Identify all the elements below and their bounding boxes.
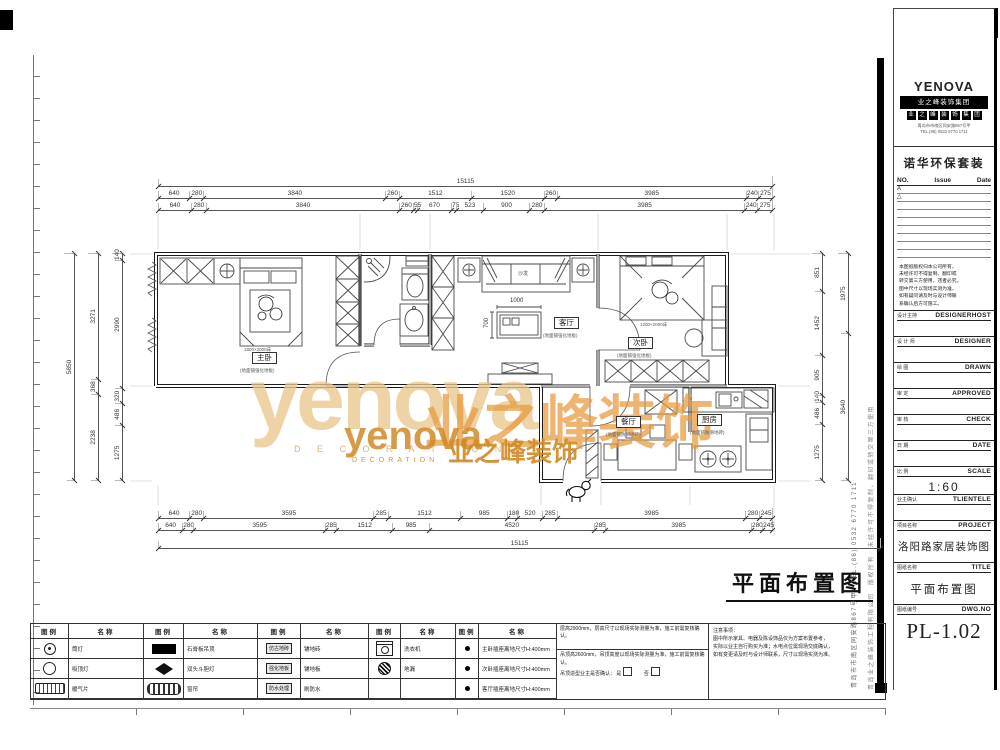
dim-label: 523	[456, 203, 483, 211]
dim-label: 3985	[557, 191, 746, 199]
dim-label: 640	[158, 523, 182, 531]
field-title: 图纸名称TITLE 平面布置图	[894, 562, 994, 604]
dim-label: 285	[542, 511, 556, 519]
curtain-icon	[147, 683, 181, 695]
legend-table: 图例 名称 图例 名称 图例 名称 图例 名称 图例 名称 筒灯 石膏板吊顶 仿…	[30, 623, 886, 700]
project-name: 洛阳路家居装饰图	[897, 531, 991, 554]
legend-icon-cell	[144, 679, 184, 699]
legend-name: 筒灯	[69, 639, 144, 659]
issue-row: △	[897, 194, 991, 202]
legend-icon-cell	[456, 679, 479, 699]
field-approved: 审 定APPROVED	[894, 388, 994, 414]
dim-label: 240	[746, 191, 758, 199]
field-label-cn: 图纸名称	[897, 564, 917, 571]
legend-header-name: 名称	[69, 624, 144, 639]
field-label-cn: 绘 图	[897, 364, 908, 371]
field-label-en: PROJECT	[958, 522, 991, 529]
issue-row	[897, 202, 991, 210]
legend-icon-cell	[144, 639, 184, 659]
copyright-disclaimer: 本图纸版权归本公司所有，未经许可不得复制、翻印或转交第三方使用，违者必究。图中尺…	[894, 258, 994, 311]
legend-notes: 层高2900mm，层高尺寸以现场实际测量为准，施工前需复核确认。 吊顶高2600…	[557, 624, 709, 699]
dim-label: 2990	[115, 261, 123, 389]
legend-icon-cell	[31, 679, 69, 699]
field-drawn: 绘 图DRAWN	[894, 362, 994, 388]
dim-label: 486	[115, 404, 123, 426]
dim-label: 1520	[471, 191, 544, 199]
legend-header-name: 名称	[401, 624, 456, 639]
dim-label: 15115	[158, 541, 880, 549]
legend-icon-cell: 仿古地砖	[258, 639, 301, 659]
brand-block-char: 集	[962, 111, 971, 120]
disclaimer-line: 图中尺寸以现场实测为准，	[899, 286, 989, 293]
ceiling-lamp-icon	[43, 662, 56, 675]
field-clientele: 业主确认TLIENTELE	[894, 494, 994, 520]
brand-block-char: 之	[918, 111, 927, 120]
legend-name: 双头斗胆灯	[184, 659, 258, 679]
legend-name	[401, 679, 456, 699]
legend-icon-cell	[369, 679, 401, 699]
waterproofing-icon: 防水处理	[266, 683, 292, 694]
dim-chain-bottom-1: 640280359528515129851805202853985280245	[158, 508, 773, 519]
field-label-cn: 设 计 师	[897, 338, 915, 345]
field-value	[897, 425, 991, 428]
legend-header-symbol: 图例	[31, 624, 69, 639]
dim-chain-bottom-overall: 15115	[158, 538, 881, 549]
legend-name: 主卧插座离地尺寸H:400mm	[479, 639, 557, 659]
legend-icon-cell	[144, 659, 184, 679]
dim-label: 4520	[429, 523, 594, 531]
room-label-master: 主卧	[252, 352, 277, 364]
legend-icon-cell	[31, 639, 69, 659]
field-label-cn: 设计主持	[897, 312, 917, 319]
legend-header-symbol: 图例	[144, 624, 184, 639]
field-value	[897, 373, 991, 376]
dim-label: 280	[529, 203, 544, 211]
company-address: 青岛市市南区同安路867号甲 TEL.(86) 0532 6770 1711	[898, 123, 990, 136]
dim-label: 280	[189, 511, 203, 519]
bed-caption-second: 1200×2000床	[640, 322, 667, 328]
field-label-cn: 图纸编号	[897, 606, 917, 613]
dim-label: 900	[483, 203, 529, 211]
dim-label: 368	[91, 380, 99, 395]
dim-label: 5850	[67, 254, 75, 481]
dim-label: 280	[191, 203, 206, 211]
sheet-title: 平面布置图	[897, 573, 991, 597]
address-line1: 青岛市市南区同安路867号甲	[917, 123, 970, 128]
dim-label: 640	[158, 203, 191, 211]
dim-chain-right-mid: 36401975	[838, 253, 849, 481]
issue-row	[897, 226, 991, 234]
issue-header: NO. Issue Date	[897, 177, 991, 186]
dim-label: 520	[517, 511, 542, 519]
field-scale: 比 例SCALE 1:60	[894, 466, 994, 494]
legend-name: 吸顶灯	[69, 659, 144, 679]
dim-label: 285	[325, 523, 336, 531]
field-project: 项目名称PROJECT 洛阳路家居装饰图	[894, 520, 994, 562]
dim-label: 3840	[206, 203, 399, 211]
field-label-cn: 日 期	[897, 442, 908, 449]
legend-name: 刷防水	[301, 679, 369, 699]
legend-icon-cell	[369, 639, 401, 659]
dim-label: 3840	[203, 191, 385, 199]
laminate-floor-icon: 强化地板	[266, 663, 292, 674]
company-logo: YENOVA 业之峰装饰集团 业之峰装饰集团 青岛市市南区同安路867号甲 TE…	[894, 9, 994, 140]
field-label-en: DWG.NO	[962, 606, 991, 613]
legend-header-name: 名称	[301, 624, 369, 639]
field-label-en: TITLE	[971, 564, 991, 571]
dog-figure	[566, 479, 591, 502]
legend-header-name: 名称	[479, 624, 557, 639]
dim-label: 240	[744, 203, 757, 211]
field-label-en: DRAWN	[965, 364, 991, 371]
field-value	[897, 451, 991, 454]
brand-bar: 业之峰装饰集团	[900, 96, 988, 109]
legend-icon-cell	[369, 659, 401, 679]
legend-name: 铺地板	[301, 659, 369, 679]
legend-name: 洗衣机	[401, 639, 456, 659]
legend-name: 客厅插座离地尺寸H:400mm	[479, 679, 557, 699]
legend-icon-cell	[456, 639, 479, 659]
brand-block-char: 饰	[951, 111, 960, 120]
dim-label: 245	[762, 523, 772, 531]
legend-icon-cell	[456, 659, 479, 679]
dim-label: 1275	[815, 425, 823, 481]
dim-chain-top-overall: 15115	[158, 176, 773, 187]
dim-label: 280	[189, 191, 203, 199]
field-value	[897, 321, 991, 324]
dim-label: 140	[815, 396, 823, 403]
no-checkbox[interactable]	[651, 667, 660, 676]
address-line2: TEL.(86) 0532 6770 1711	[920, 129, 967, 134]
dim-label: 3985	[605, 523, 751, 531]
note-line2: 吊顶高2600mm，吊顶高度以现场实际测量为准，施工前需复核确认。	[560, 652, 704, 666]
brand-block-char: 业	[907, 111, 916, 120]
dim-label: 640	[158, 511, 189, 519]
issue-row	[897, 210, 991, 218]
socket-dot-icon	[465, 646, 470, 651]
room-label-kitchen: 厨房	[697, 414, 722, 426]
confirm-no-label: 否	[644, 671, 649, 677]
field-label-cn: 业主确认	[897, 496, 917, 503]
dim-label: 320	[115, 389, 123, 404]
field-label-en: DESIGNER	[955, 338, 991, 345]
drawing-sheet: yenova D E C O R A T I O N 业之峰装饰 yenova …	[0, 0, 1000, 750]
dim-label: 985	[392, 523, 429, 531]
dim-label: 670	[417, 203, 451, 211]
field-value	[897, 347, 991, 350]
dim-label: 3985	[557, 511, 746, 519]
confirm-yes-label: 是	[616, 671, 621, 677]
dim-label: 285	[373, 511, 387, 519]
field-label-en: DATE	[973, 442, 991, 449]
legend-name: 次卧插座离地尺寸H:400mm	[479, 659, 557, 679]
brand-block-char: 团	[973, 111, 982, 120]
dim-label: 640	[158, 191, 189, 199]
dim-label: 280	[751, 523, 762, 531]
table-dim-width: 1000	[510, 298, 523, 304]
dim-label: 285	[594, 523, 605, 531]
dim-label: 180	[507, 511, 516, 519]
field-designerhost: 设计主持DESIGNERHOST	[894, 310, 994, 336]
dim-label: 1512	[388, 511, 460, 519]
legend-grid: 图例 名称 图例 名称 图例 名称 图例 名称 图例 名称 筒灯 石膏板吊顶 仿…	[31, 624, 557, 699]
legend-icon-cell: 强化地板	[258, 659, 301, 679]
brand-block-char: 峰	[929, 111, 938, 120]
drawing-number: PL-1.02	[897, 615, 991, 644]
dim-label: 1452	[815, 292, 823, 356]
room-label-second: 次卧	[628, 337, 653, 349]
sofa-caption: 沙发	[518, 270, 528, 277]
dim-label: 280	[182, 523, 193, 531]
dim-label: 245	[759, 511, 772, 519]
scale-value: 1:60	[897, 477, 991, 494]
bed-caption-master: 1800×2000床	[244, 347, 271, 353]
dim-label: 140	[115, 254, 123, 261]
field-label-en: SCALE	[967, 468, 991, 475]
room-note-master: (地面铺强化地板)	[240, 368, 275, 374]
field-check: 审 核CHECK	[894, 414, 994, 440]
dim-label: 15115	[158, 179, 772, 187]
disclaimer-line: 转交第三方使用，违者必究。	[899, 278, 989, 285]
dim-chain-left-mid: 22383683271	[88, 253, 99, 481]
dim-label: 486	[815, 403, 823, 425]
field-label-en: DESIGNERHOST	[935, 312, 991, 319]
issue-row	[897, 234, 991, 242]
issue-row: A	[897, 186, 991, 194]
dim-label: 3271	[91, 254, 99, 380]
legend-header-symbol: 图例	[456, 624, 479, 639]
table-dim-height: 700	[484, 318, 490, 328]
issue-table: NO. Issue Date A △	[894, 177, 994, 258]
dim-chain-top-1: 6402803840260151215202603985240275	[158, 188, 773, 199]
field-date: 日 期DATE	[894, 440, 994, 466]
dim-label: 3595	[203, 511, 373, 519]
legend-name: 铺地砖	[301, 639, 369, 659]
field-label-cn: 审 核	[897, 416, 908, 423]
remark-line: 如有变更请及时与设计师联系，尺寸以现场实测为准。	[713, 651, 881, 659]
dim-label: 280	[745, 511, 759, 519]
legend-name: 窗帘	[184, 679, 258, 699]
field-label-cn: 项目名称	[897, 522, 917, 529]
legend-header-symbol: 图例	[258, 624, 301, 639]
field-value	[897, 505, 991, 508]
brand-name: YENOVA	[898, 79, 990, 94]
dim-label: 851	[815, 254, 823, 292]
dim-label: 1512	[399, 191, 471, 199]
issue-row	[897, 250, 991, 258]
brand-blocks: 业之峰装饰集团	[898, 111, 990, 120]
dim-label: 260	[544, 191, 557, 199]
note-confirm-label: 吊顶造型业主是否确认：	[560, 671, 615, 677]
socket-dot-icon	[465, 686, 470, 691]
legend-name: 暖气片	[69, 679, 144, 699]
gypsum-ceiling-icon	[152, 644, 176, 654]
dim-chain-top-2: 640280384026055670755239002803985240275	[158, 200, 773, 211]
floor-drain-icon	[378, 662, 391, 675]
dim-label: 905	[815, 356, 823, 396]
floor-tile-icon: 仿古地砖	[266, 643, 292, 654]
legend-name: 地漏	[401, 659, 456, 679]
room-note-dining: (地面铺防滑地砖)	[606, 432, 641, 438]
field-dwgno: 图纸编号DWG.NO PL-1.02	[894, 604, 994, 644]
disclaimer-line: 未经许可不得复制、翻印或	[899, 271, 989, 278]
dim-label: 3985	[544, 203, 744, 211]
room-label-dining: 餐厅	[616, 416, 641, 428]
issue-no-label: NO.	[897, 177, 909, 184]
legend-header-name: 名称	[184, 624, 258, 639]
dim-label: 3640	[841, 334, 849, 481]
note-drop-ceiling: 吊顶高2600mm，吊顶高度以现场实际测量为准，施工前需复核确认。 吊顶造型业主…	[557, 650, 708, 699]
legend-name: 石膏板吊顶	[184, 639, 258, 659]
radiator-icon	[35, 683, 65, 694]
remark-line: 图中所示家具、电器及陈设饰品仅为方案布置参考，	[713, 635, 881, 643]
room-note-second: (地面铺强化地板)	[617, 353, 652, 359]
dim-chain-left-inner: 12754863202990140	[112, 253, 123, 481]
divider	[894, 146, 994, 147]
dim-label: 275	[757, 203, 772, 211]
disclaimer-line: 如有疑问请及时与设计师联	[899, 293, 989, 300]
issue-row	[897, 242, 991, 250]
socket-dot-icon	[465, 666, 470, 671]
field-label-en: APPROVED	[952, 390, 991, 397]
dim-label: 985	[460, 511, 507, 519]
remark-line: 注意事项：	[713, 627, 881, 635]
field-label-en: CHECK	[966, 416, 991, 423]
brand-block-char: 装	[940, 111, 949, 120]
downlight-icon	[44, 643, 56, 655]
field-value	[897, 399, 991, 402]
dim-label: 1275	[115, 426, 123, 481]
dim-label: 275	[758, 191, 772, 199]
legend-remarks: 注意事项：图中所示家具、电器及陈设饰品仅为方案布置参考，实际以业主自行购买为准；…	[709, 624, 885, 699]
legend-icon-cell	[31, 659, 69, 679]
spotlight-icon	[164, 663, 173, 675]
note-ceiling-height: 层高2900mm，层高尺寸以现场实际测量为准，施工前需复核确认。	[557, 624, 708, 650]
room-note-kitchen: (地面铺防滑地砖)	[690, 430, 725, 436]
field-label-cn: 比 例	[897, 468, 908, 475]
legend-icon-cell: 防水处理	[258, 679, 301, 699]
issue-date-label: Date	[977, 177, 991, 184]
disclaimer-line: 本图纸版权归本公司所有，	[899, 264, 989, 271]
issue-issue-label: Issue	[934, 177, 951, 184]
yes-checkbox[interactable]	[623, 667, 632, 676]
field-designer: 设 计 师DESIGNER	[894, 336, 994, 362]
dim-label: 1512	[336, 523, 392, 531]
dim-label: 2238	[91, 395, 99, 481]
dim-label: 1975	[841, 254, 849, 334]
package-name: 诺华环保套装	[894, 155, 994, 171]
dim-chain-bottom-2: 6402803595285151298545202853985280245	[158, 520, 773, 531]
dim-label: 260	[385, 191, 398, 199]
dim-chain-right-inner: 12754861409051452851	[812, 253, 823, 481]
field-label-en: TLIENTELE	[953, 496, 991, 503]
remark-line: 实际以业主自行购买为准；水电点位需现场交底确认，	[713, 643, 881, 651]
issue-row	[897, 218, 991, 226]
title-block: YENOVA 业之峰装饰集团 业之峰装饰集团 青岛市市南区同安路867号甲 TE…	[893, 8, 997, 690]
legend-header-symbol: 图例	[369, 624, 401, 639]
room-note-living: (地面铺强化地板)	[543, 333, 578, 339]
dim-chain-left-overall: 5850	[64, 253, 75, 481]
dim-label: 260	[399, 203, 413, 211]
field-label-cn: 审 定	[897, 390, 908, 397]
washer-icon	[376, 641, 393, 656]
dim-label: 3595	[193, 523, 325, 531]
disclaimer-line: 系确认后方可施工。	[899, 301, 989, 308]
room-label-living: 客厅	[554, 317, 579, 329]
